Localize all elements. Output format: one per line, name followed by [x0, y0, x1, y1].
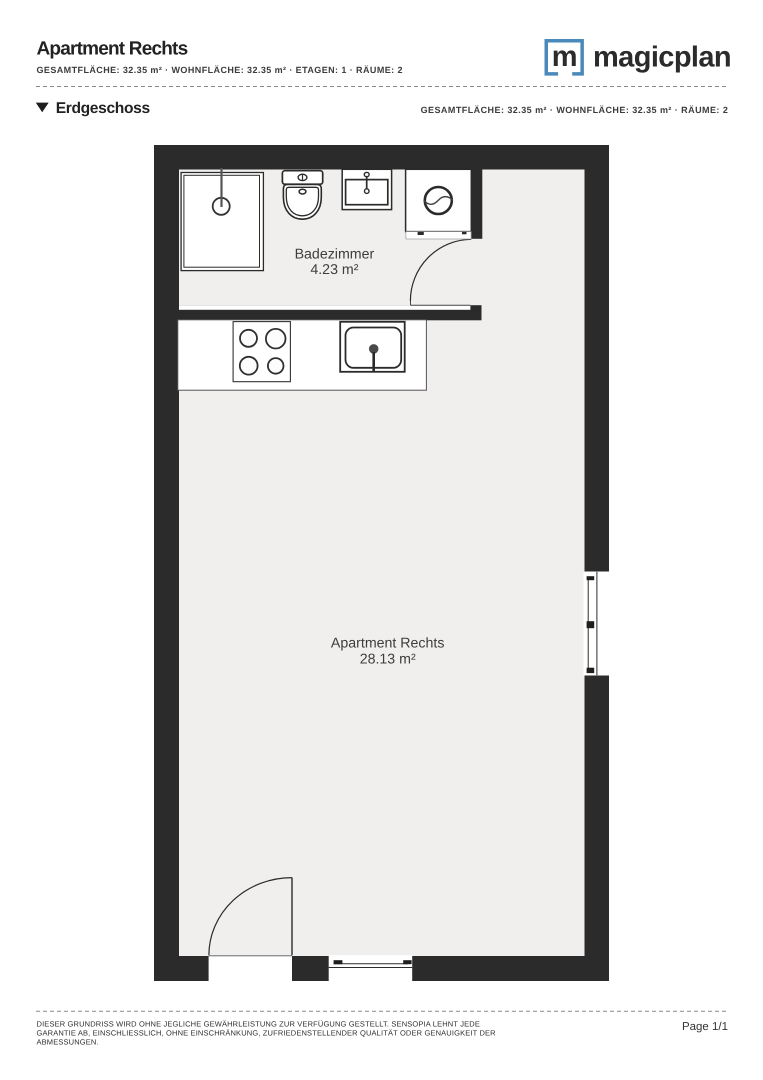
- svg-text:Badezimmer: Badezimmer: [295, 247, 375, 263]
- svg-text:GESAMTFLÄCHE: 32.35 m² · WOH: GESAMTFLÄCHE: 32.35 m² · WOHNFLÄCHE: 32.…: [421, 105, 729, 115]
- svg-text:Page 1/1: Page 1/1: [682, 1021, 728, 1033]
- svg-text:GARANTIE AB, EINSCHLIESSLICH,: GARANTIE AB, EINSCHLIESSLICH, OHNE EINSC…: [37, 1029, 497, 1038]
- svg-text:Apartment Rechts: Apartment Rechts: [37, 39, 188, 60]
- svg-text:4.23 m²: 4.23 m²: [310, 262, 358, 278]
- svg-text:m: m: [552, 41, 578, 73]
- svg-text:DIESER GRUNDRISS WIRD OHNE JEG: DIESER GRUNDRISS WIRD OHNE JEGLICHE GEWÄ…: [37, 1020, 480, 1029]
- svg-text:Erdgeschoss: Erdgeschoss: [56, 100, 151, 117]
- svg-text:Apartment Rechts: Apartment Rechts: [331, 636, 445, 652]
- svg-text:magicplan: magicplan: [593, 41, 731, 73]
- svg-text:ABMESSUNGEN.: ABMESSUNGEN.: [37, 1038, 99, 1047]
- svg-text:GESAMTFLÄCHE: 32.35 m² · WOH: GESAMTFLÄCHE: 32.35 m² · WOHNFLÄCHE: 32.…: [37, 65, 403, 75]
- svg-text:28.13 m²: 28.13 m²: [360, 652, 416, 668]
